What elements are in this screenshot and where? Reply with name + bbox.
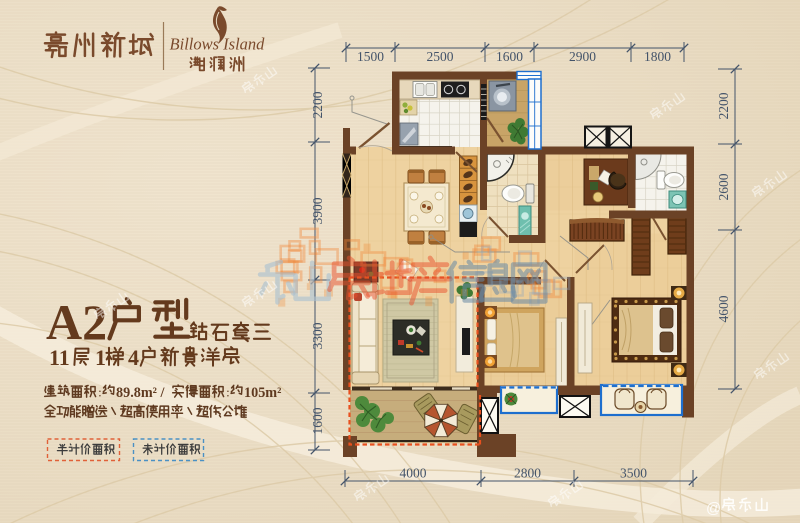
svg-text:1800: 1800 <box>644 49 671 64</box>
svg-text:1600: 1600 <box>496 49 523 64</box>
svg-text:105m²: 105m² <box>244 385 281 401</box>
svg-text:4000: 4000 <box>400 466 427 481</box>
svg-text:2600: 2600 <box>716 173 731 200</box>
svg-text:89.8m² /: 89.8m² / <box>116 385 165 401</box>
svg-text:2200: 2200 <box>310 91 325 118</box>
svg-text:4600: 4600 <box>716 295 731 322</box>
svg-text:Billows Island: Billows Island <box>170 35 266 54</box>
svg-text:4: 4 <box>128 345 139 370</box>
svg-text:3300: 3300 <box>310 322 325 349</box>
svg-text:1500: 1500 <box>357 49 384 64</box>
svg-text:A2: A2 <box>46 294 107 350</box>
svg-text:2900: 2900 <box>569 49 596 64</box>
svg-text:2500: 2500 <box>427 49 454 64</box>
svg-text::: : <box>98 385 102 400</box>
svg-text:@: @ <box>706 500 721 517</box>
svg-text:3500: 3500 <box>620 466 647 481</box>
svg-text::: : <box>226 385 230 400</box>
svg-text:2800: 2800 <box>514 466 541 481</box>
svg-text:1600: 1600 <box>310 407 325 434</box>
svg-text:3900: 3900 <box>310 197 325 224</box>
svg-text:11: 11 <box>49 345 70 370</box>
svg-text:2200: 2200 <box>716 92 731 119</box>
svg-text:1: 1 <box>95 345 106 370</box>
